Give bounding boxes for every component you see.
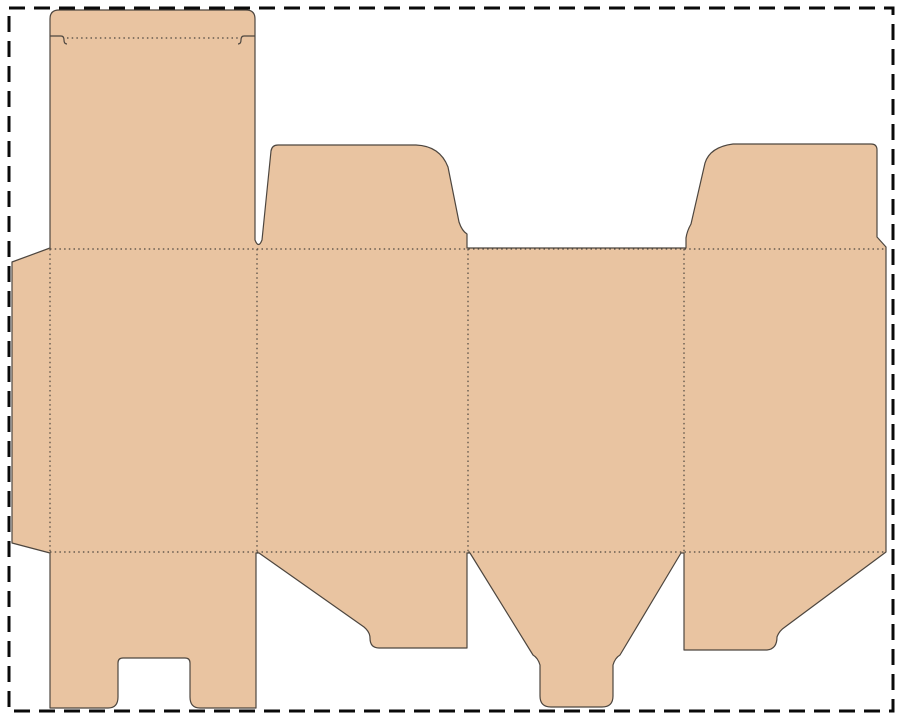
box-dieline-svg xyxy=(0,0,900,719)
dieline-page xyxy=(0,0,900,719)
box-dieline-silhouette xyxy=(12,10,886,708)
